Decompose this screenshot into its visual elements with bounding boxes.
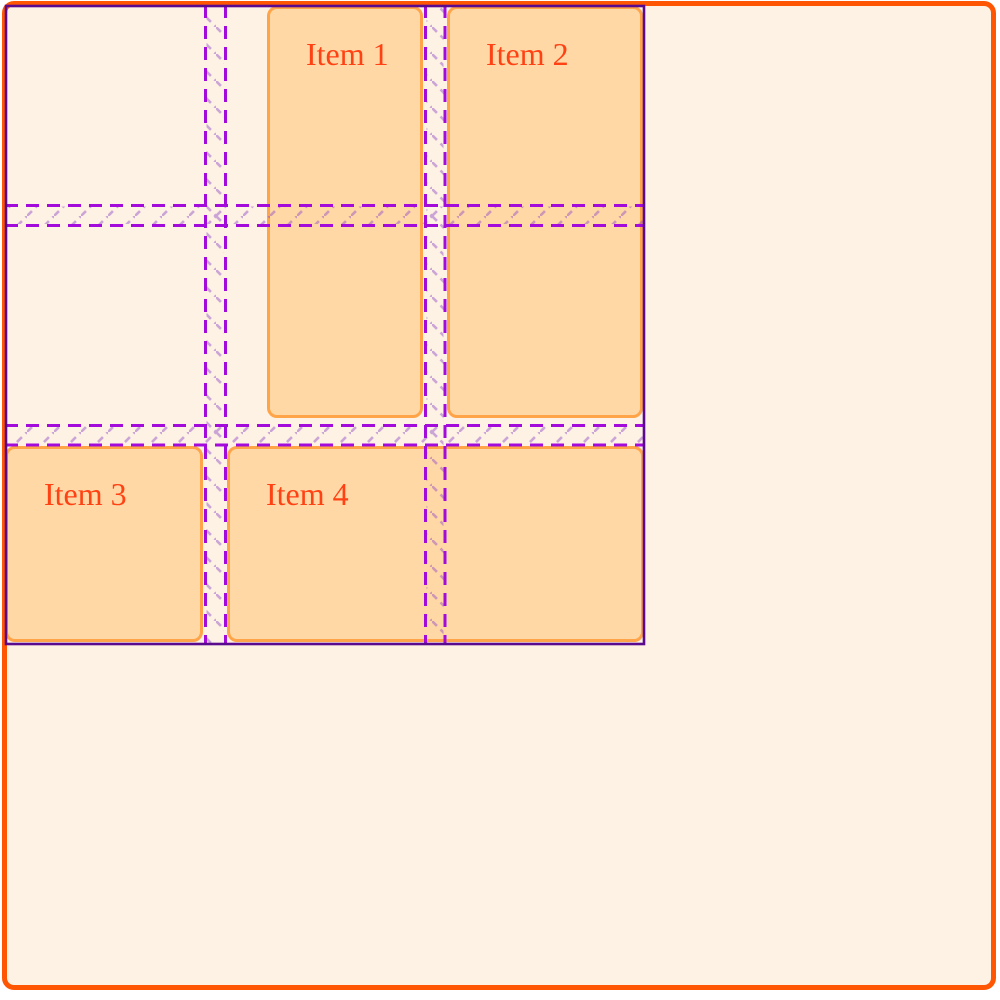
grid-item-3: Item 3 [5, 446, 203, 642]
page: Item 1 Item 2 Item 3 Item 4 [0, 0, 1000, 1000]
grid-item-4: Item 4 [227, 446, 644, 642]
grid-item-2-label: Item 2 [486, 36, 569, 72]
grid-item-3-label: Item 3 [44, 476, 127, 512]
grid-item-4-label: Item 4 [266, 476, 349, 512]
grid-item-2: Item 2 [447, 6, 643, 418]
grid-item-1-label: Item 1 [306, 36, 389, 72]
grid-item-1: Item 1 [267, 6, 423, 418]
